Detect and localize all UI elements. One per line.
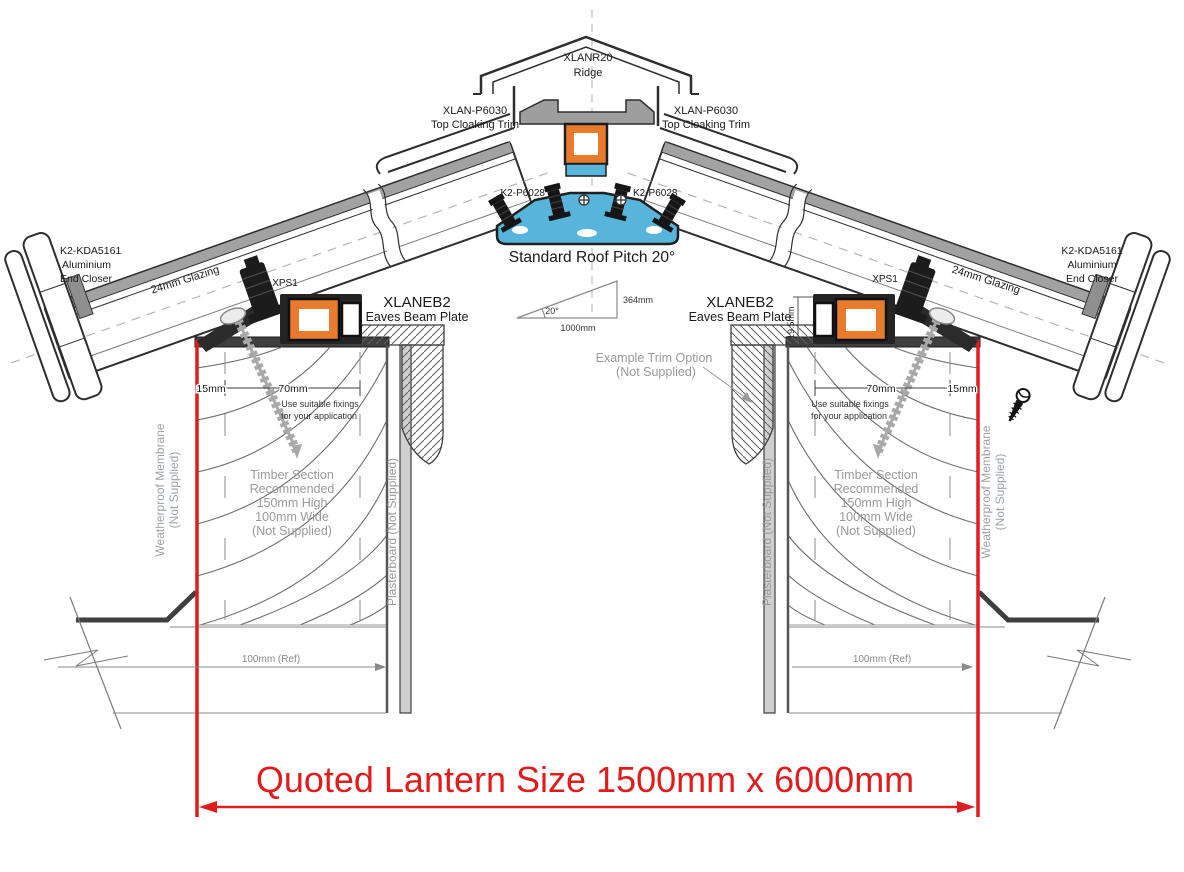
eaves-right-label: Eaves Beam Plate bbox=[689, 310, 792, 324]
end-closer-left-line1: K2-KDA5161 bbox=[60, 245, 121, 257]
pitch-angle-label: 20° bbox=[545, 306, 559, 316]
kerb-left bbox=[44, 325, 444, 817]
svg-text:Timber Section: Timber Section bbox=[834, 468, 918, 482]
pitch-title: Standard Roof Pitch 20° bbox=[509, 249, 675, 266]
svg-text:(Not Supplied): (Not Supplied) bbox=[993, 454, 1007, 531]
quoted-size-dimension bbox=[199, 801, 975, 813]
timber-note-left: Timber Section Recommended 150mm High 10… bbox=[250, 468, 335, 538]
clamp-left-label: XPS1 bbox=[272, 278, 298, 289]
kerb-right bbox=[731, 325, 1131, 817]
svg-text:100mm Wide: 100mm Wide bbox=[255, 510, 329, 524]
ridge-bolt-right-label: K2-P6028 bbox=[633, 188, 678, 199]
ridge-label: Ridge bbox=[574, 67, 603, 79]
fixings-note-left-line2: for your application bbox=[281, 411, 357, 421]
quoted-size-label: Quoted Lantern Size 1500mm x 6000mm bbox=[256, 759, 914, 800]
plasterboard-right-label: Plasterboard (Not Supplied) bbox=[760, 458, 774, 606]
ridge-code-label: XLANR20 bbox=[564, 52, 613, 64]
end-closer-right-line3: End Closer bbox=[1066, 273, 1118, 285]
fixings-note-left-line1: Use suitable fixings bbox=[281, 399, 359, 409]
svg-text:(Not Supplied): (Not Supplied) bbox=[167, 452, 181, 529]
cloaking-left-code: XLAN-P6030 bbox=[443, 105, 507, 117]
svg-text:150mm High: 150mm High bbox=[841, 496, 912, 510]
roof-lantern-section-drawing: XLANR20 Ridge XLAN-P6030 Top Cloaking Tr… bbox=[0, 0, 1184, 872]
ridge-bolt-left-label: K2-P6028 bbox=[501, 188, 546, 199]
svg-text:Recommended: Recommended bbox=[250, 482, 335, 496]
end-closer-right-line2: Aluminium bbox=[1067, 259, 1116, 271]
cloaking-right-code: XLAN-P6030 bbox=[674, 105, 738, 117]
trim-note-line2: (Not Supplied) bbox=[616, 365, 696, 379]
ref-label-right: 100mm (Ref) bbox=[853, 654, 911, 665]
svg-text:Weatherproof Membrane: Weatherproof Membrane bbox=[979, 425, 993, 559]
svg-text:150mm High: 150mm High bbox=[257, 496, 328, 510]
membrane-note-left: Weatherproof Membrane (Not Supplied) bbox=[153, 423, 181, 557]
plasterboard-left-label: Plasterboard (Not Supplied) bbox=[385, 458, 399, 606]
ref-label-left: 100mm (Ref) bbox=[242, 654, 300, 665]
svg-text:(Not Supplied): (Not Supplied) bbox=[836, 524, 916, 538]
screw-icon bbox=[1004, 387, 1032, 424]
pitch-base-label: 1000mm bbox=[560, 323, 595, 333]
technical-drawing-sheet: XLANR20 Ridge XLAN-P6030 Top Cloaking Tr… bbox=[0, 0, 1184, 872]
trim-note-line1: Example Trim Option bbox=[596, 351, 713, 365]
pitch-triangle bbox=[517, 281, 617, 318]
cloaking-left-label: Top Cloaking Trim bbox=[431, 119, 519, 131]
membrane-note-right: Weatherproof Membrane (Not Supplied) bbox=[979, 425, 1007, 559]
dim-70mm-left: 70mm bbox=[278, 383, 307, 395]
timber-note-right: Timber Section Recommended 150mm High 10… bbox=[834, 468, 919, 538]
svg-text:Weatherproof Membrane: Weatherproof Membrane bbox=[153, 423, 167, 557]
upstand-dim-label: 19.5mm bbox=[786, 306, 796, 339]
fixings-note-right-line2: for your application bbox=[811, 411, 887, 421]
clamp-right-label: XPS1 bbox=[872, 274, 898, 285]
end-closer-left-line3: End Closer bbox=[60, 273, 112, 285]
eaves-left-label: Eaves Beam Plate bbox=[366, 310, 469, 324]
cloaking-right-label: Top Cloaking Trim bbox=[662, 119, 750, 131]
pitch-rise-label: 364mm bbox=[623, 295, 653, 305]
ref-line-left bbox=[58, 663, 386, 671]
fixings-note-right-line1: Use suitable fixings bbox=[811, 399, 889, 409]
eaves-right-code: XLANEB2 bbox=[706, 294, 774, 311]
eaves-left-code: XLANEB2 bbox=[383, 294, 451, 311]
svg-text:100mm Wide: 100mm Wide bbox=[839, 510, 913, 524]
dim-15mm-right: 15mm bbox=[947, 383, 976, 395]
end-closer-left-line2: Aluminium bbox=[62, 259, 111, 271]
svg-text:Timber Section: Timber Section bbox=[250, 468, 334, 482]
svg-text:Recommended: Recommended bbox=[834, 482, 919, 496]
end-closer-right-line1: K2-KDA5161 bbox=[1061, 245, 1122, 257]
svg-text:(Not Supplied): (Not Supplied) bbox=[252, 524, 332, 538]
dim-15mm-left: 15mm bbox=[196, 383, 225, 395]
dim-70mm-right: 70mm bbox=[866, 383, 895, 395]
